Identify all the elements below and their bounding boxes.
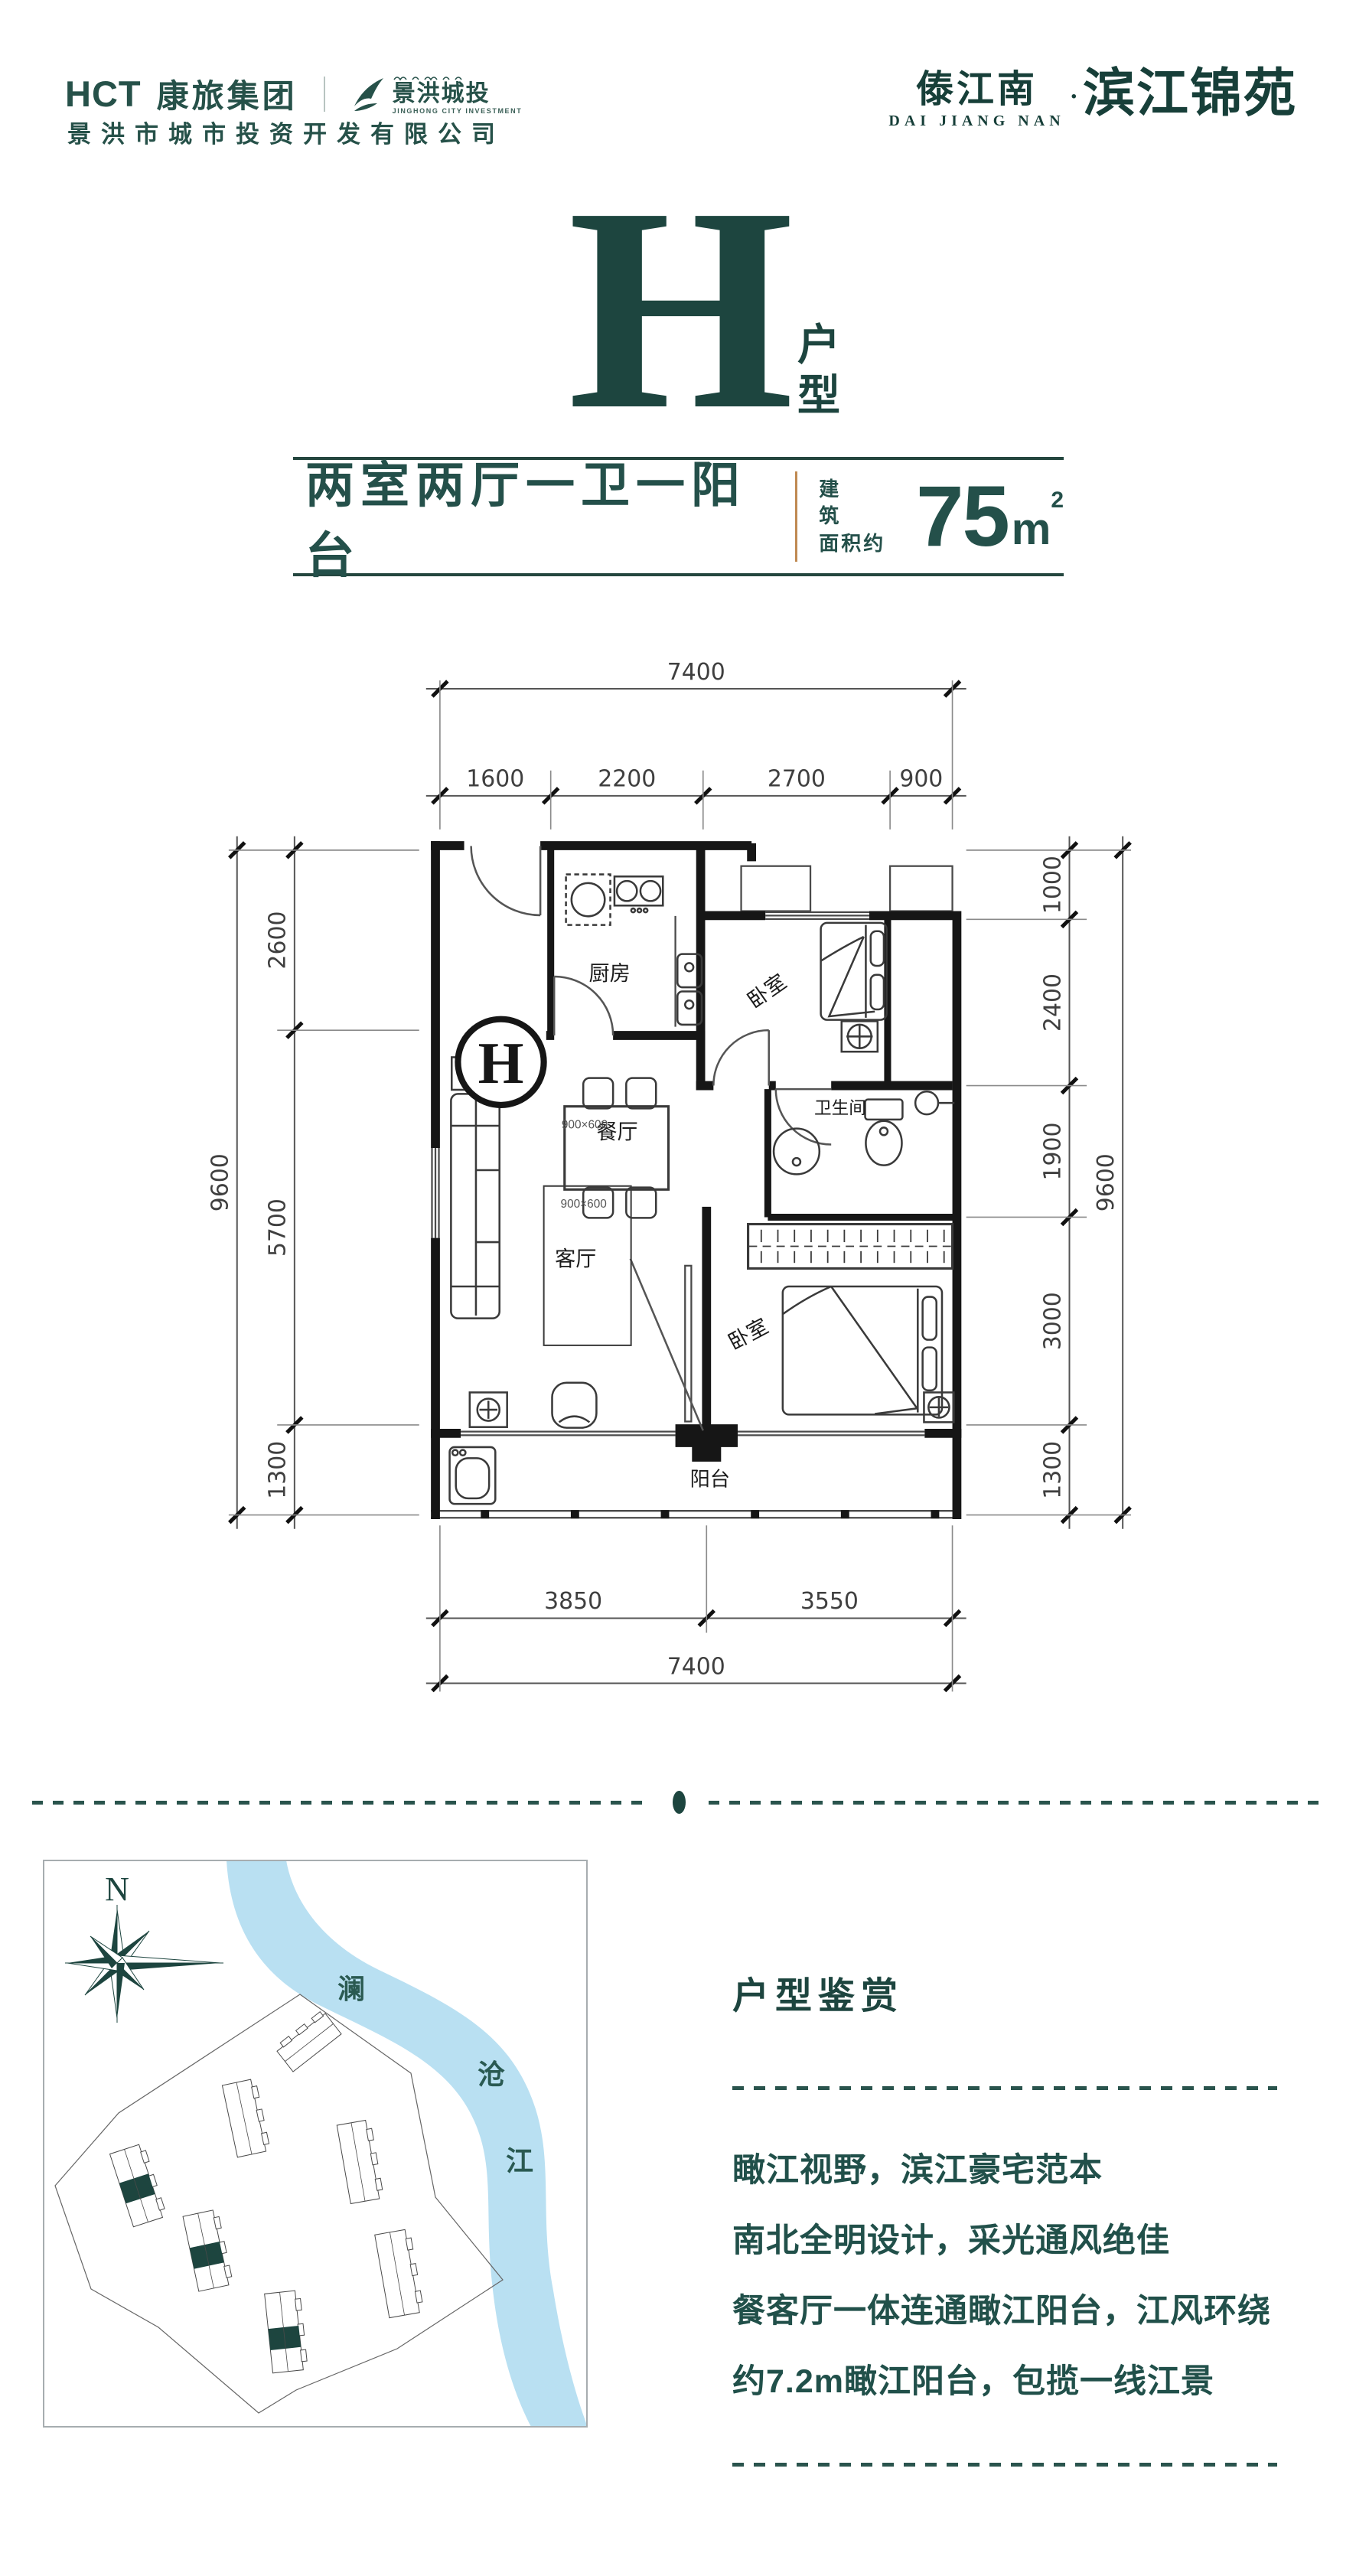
hct-logo: HCT	[65, 73, 142, 115]
river-label-1: 澜	[337, 1973, 365, 2004]
floorplan-poster: HCT 康旅集团 景洪城投 JINGHONG CITY INVESTMENT 景…	[0, 0, 1356, 2576]
svg-text:3850: 3850	[544, 1588, 602, 1615]
furniture	[450, 875, 955, 1505]
divider-dot-icon	[673, 1791, 686, 1814]
area-sup: 2	[1051, 487, 1064, 513]
svg-text:9600: 9600	[207, 1153, 234, 1211]
header-logos: HCT 康旅集团 景洪城投 JINGHONG CITY INVESTMENT	[65, 70, 522, 117]
table-size-label-2: 900×600	[561, 1198, 607, 1211]
river-label-2: 沧	[478, 2059, 505, 2090]
site-map: 澜 沧 江 N	[43, 1860, 588, 2428]
svg-text:1300: 1300	[265, 1441, 292, 1499]
exterior-walls	[431, 841, 961, 1519]
leaf-icon	[351, 76, 385, 112]
jinghong-logo: 景洪城投 JINGHONG CITY INVESTMENT	[351, 73, 523, 115]
section-divider	[32, 1791, 1325, 1814]
appreciation-rule-bottom	[732, 2463, 1277, 2467]
svg-text:7400: 7400	[667, 1653, 725, 1680]
svg-text:3000: 3000	[1039, 1292, 1066, 1350]
balcony-pier	[676, 1424, 738, 1462]
brand-name-en: DAI JIANG NAN	[888, 112, 1064, 130]
company-name: 景洪市城市投资开发有限公司	[67, 115, 505, 149]
brand-dot: ·	[1070, 84, 1078, 110]
appreciation-line: 约7.2m瞰江阳台，包揽一线江景	[732, 2346, 1314, 2417]
appreciation-line: 瞰江视野，滨江豪宅范本	[732, 2135, 1314, 2206]
project-brand: 傣江南 DAI JIANG NAN · 滨江锦苑	[888, 67, 1297, 130]
area-unit: m2	[1012, 507, 1064, 552]
table-size-label-1: 900×600	[562, 1119, 608, 1132]
svg-text:3550: 3550	[800, 1588, 859, 1615]
compass-north-label: N	[105, 1870, 129, 1908]
room-label-bedroom1: 卧室	[743, 970, 790, 1013]
logo-divider	[324, 77, 325, 112]
layout-text: 两室两厅一卫一阳台	[305, 446, 787, 587]
room-label-kitchen: 厨房	[588, 961, 630, 985]
svg-text:1300: 1300	[1039, 1441, 1066, 1499]
svg-text:7400: 7400	[667, 659, 725, 686]
divider-dash-left	[32, 1801, 650, 1805]
hct-logo-cn: 康旅集团	[157, 70, 298, 117]
unit-marker-letter: H	[478, 1030, 524, 1096]
appreciation-line: 南北全明设计，采光通风绝佳	[732, 2206, 1314, 2276]
area-label-line1: 建筑	[819, 476, 902, 530]
unit-type-char-2: 型	[797, 375, 840, 418]
unit-type-char-1: 户	[797, 324, 840, 367]
svg-text:2700: 2700	[768, 766, 826, 793]
unit-letter: H	[568, 190, 794, 429]
svg-text:2400: 2400	[1039, 973, 1066, 1032]
svg-text:1900: 1900	[1039, 1123, 1066, 1181]
unit-summary-bar: 两室两厅一卫一阳台 建筑 面积约 75 m2	[293, 457, 1064, 576]
divider-dash-right	[709, 1801, 1326, 1805]
thin-lines	[431, 866, 957, 1518]
svg-text:9600: 9600	[1093, 1153, 1120, 1211]
svg-text:1000: 1000	[1039, 856, 1066, 914]
area-label-line2: 面积约	[819, 530, 902, 557]
jinghong-logo-en: JINGHONG CITY INVESTMENT	[393, 108, 523, 115]
floorplan-drawing: H 厨房 卧室 卫生间 餐厅 客厅 卧室 阳台 900×600 900×600 …	[184, 587, 1146, 1709]
river-label-3: 江	[506, 2145, 533, 2177]
room-label-bath: 卫生间	[814, 1099, 866, 1118]
summary-divider	[795, 471, 797, 562]
room-label-living: 客厅	[555, 1247, 596, 1270]
svg-text:1600: 1600	[466, 766, 524, 793]
room-label-balcony: 阳台	[690, 1468, 730, 1491]
appreciation-title: 户型鉴赏	[732, 1965, 904, 2019]
appreciation-rule-top	[732, 2086, 1277, 2090]
appreciation-line: 餐客厅一体连通瞰江阳台，江风环绕	[732, 2276, 1314, 2346]
svg-text:900: 900	[899, 766, 943, 793]
brand-name-small: 傣江南	[916, 70, 1038, 108]
room-label-bedroom2: 卧室	[724, 1314, 771, 1355]
unit-type-label: 户 型	[797, 324, 840, 418]
jinghong-logo-cn: 景洪城投	[393, 83, 523, 106]
dai-script-icon	[393, 73, 463, 81]
appreciation-body: 瞰江视野，滨江豪宅范本 南北全明设计，采光通风绝佳 餐客厅一体连通瞰江阳台，江风…	[732, 2135, 1314, 2417]
svg-text:2200: 2200	[598, 766, 656, 793]
svg-text:5700: 5700	[265, 1198, 292, 1257]
svg-text:2600: 2600	[265, 911, 292, 970]
brand-name-big: 滨江锦苑	[1083, 67, 1297, 119]
area-value: 75	[916, 474, 1009, 559]
area-label: 建筑 面积约	[819, 476, 902, 556]
